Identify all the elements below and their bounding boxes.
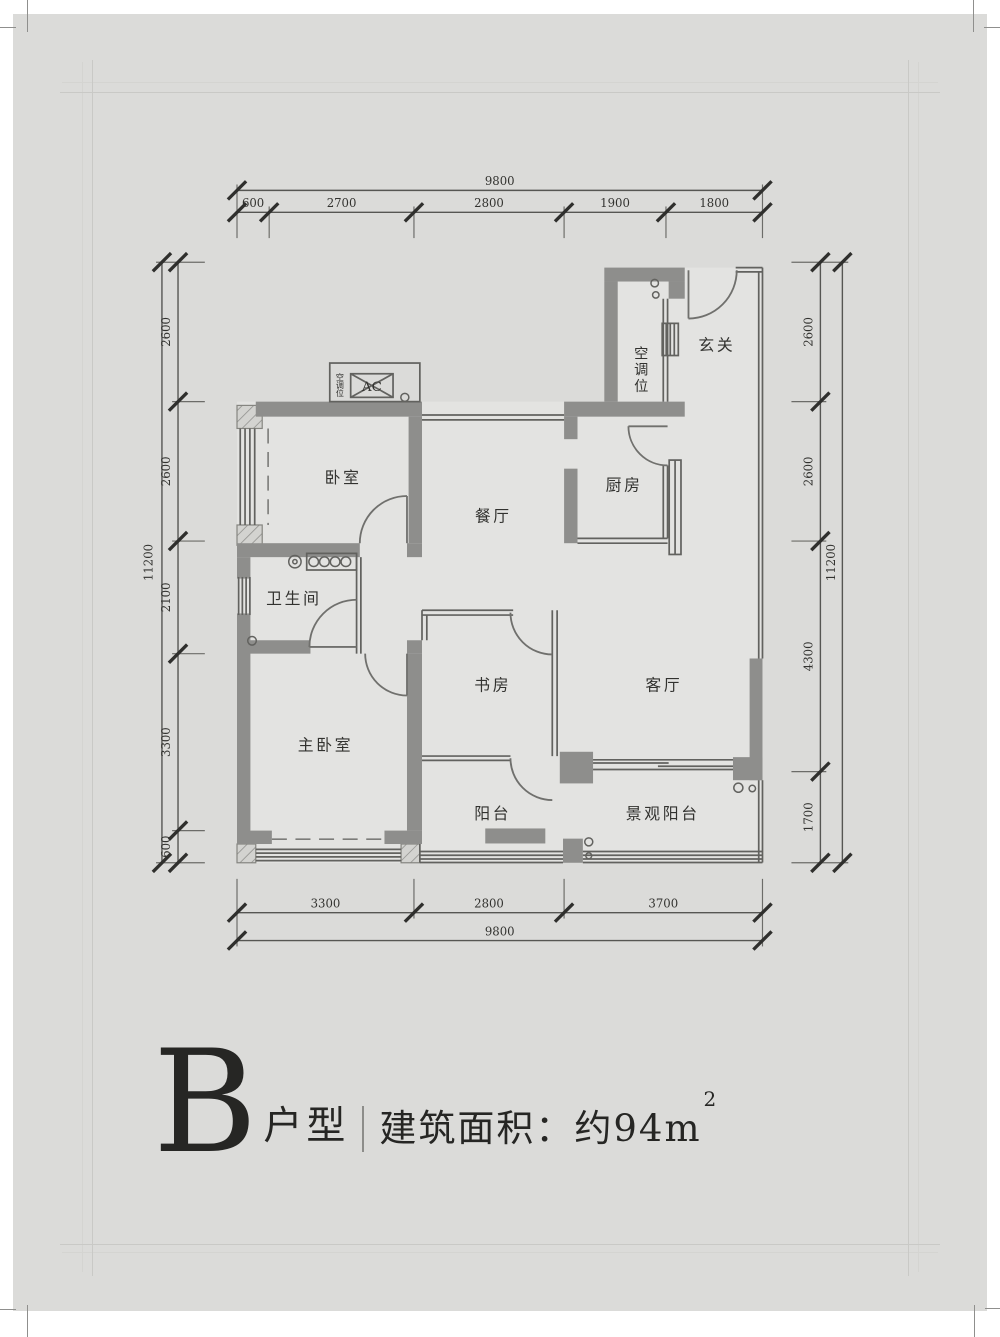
bedroom-label: 卧室	[325, 468, 362, 487]
crop-mark-tl-h	[0, 27, 16, 28]
dim-right-seg-0: 2600	[801, 317, 815, 347]
dim-left-seg-1: 2600	[159, 456, 173, 486]
dim-left-seg-3: 3300	[159, 727, 173, 757]
title-block: B 户型 建筑面积：约94m2	[153, 1046, 718, 1160]
dim-right-seg-1: 2600	[801, 456, 815, 486]
area-label: 建筑面积：约94m2	[379, 1098, 718, 1152]
crop-mark-br-v	[974, 1305, 975, 1337]
floor-plan: AC 空调位 卧室 餐厅 厨房 玄关 空调位 卫生间 书房 客厅 主卧室 阳台 …	[111, 163, 859, 962]
unit-type-suffix: 户型	[263, 1095, 349, 1151]
dim-bottom-seg-0: 3300	[311, 896, 341, 910]
dim-left-seg-4: 600	[159, 836, 173, 858]
bath-label: 卫生间	[266, 589, 321, 608]
area-text: 建筑面积：约94m	[379, 1107, 701, 1150]
dim-right-seg-2: 4300	[801, 641, 815, 671]
ac-unit-box: AC 空调位	[330, 363, 420, 402]
area-superscript: 2	[704, 1087, 719, 1111]
shaft-label: 空调位	[632, 346, 648, 395]
dim-left-seg-2: 2100	[159, 582, 173, 612]
crop-mark-tl-v	[27, 0, 28, 32]
title-divider	[362, 1106, 364, 1152]
crop-mark-bl-v	[27, 1305, 28, 1337]
dim-right-seg-3: 1700	[801, 802, 815, 832]
dim-top-seg-0: 600	[242, 196, 264, 210]
master-label: 主卧室	[298, 736, 353, 755]
dim-top-total: 9800	[485, 174, 515, 188]
dim-top: 9800 600 2700 2800 1900 1800	[228, 174, 772, 238]
frame-inner-bottom	[60, 1244, 940, 1245]
ac-side-label: 空调位	[335, 372, 344, 397]
frame-inner-top	[60, 92, 940, 93]
dim-left: 11200 2600 2600 2100 3300 600	[141, 253, 205, 872]
dim-bottom-total: 9800	[485, 925, 515, 939]
living-label: 客厅	[645, 676, 682, 695]
dim-right: 11200 2600 2600 4300 1700	[791, 253, 851, 872]
dim-top-seg-1: 2700	[327, 196, 357, 210]
unit-type-letter: B	[153, 1046, 257, 1160]
frame-outer-left	[82, 62, 83, 1272]
frame-outer-bottom	[62, 1252, 938, 1253]
dim-left-seg-0: 2600	[159, 317, 173, 347]
study-label: 书房	[474, 676, 511, 695]
view-balcony-label: 景观阳台	[626, 804, 700, 823]
dim-left-total: 11200	[141, 544, 155, 581]
frame-outer-right	[918, 62, 919, 1272]
crop-mark-br-h	[985, 1308, 1000, 1309]
dim-top-seg-2: 2800	[474, 196, 504, 210]
dining-label: 餐厅	[475, 507, 512, 526]
crop-mark-bl-h	[0, 1309, 16, 1310]
dim-right-total: 11200	[824, 544, 838, 581]
dim-top-seg-4: 1800	[699, 196, 729, 210]
ac-label: AC	[361, 380, 382, 395]
crop-mark-tr-h	[984, 27, 1000, 28]
crop-mark-tr-v	[973, 0, 974, 32]
dim-bottom: 3300 2800 3700 9800	[228, 879, 772, 950]
dim-bottom-seg-2: 3700	[648, 896, 678, 910]
frame-outer-top	[62, 82, 938, 83]
frame-inner-left	[92, 60, 93, 1276]
balcony-label: 阳台	[474, 804, 511, 823]
kitchen-label: 厨房	[606, 476, 643, 495]
dim-bottom-seg-1: 2800	[474, 896, 504, 910]
dim-top-seg-3: 1900	[600, 196, 630, 210]
entry-label: 玄关	[698, 336, 735, 355]
frame-inner-right	[908, 60, 909, 1276]
